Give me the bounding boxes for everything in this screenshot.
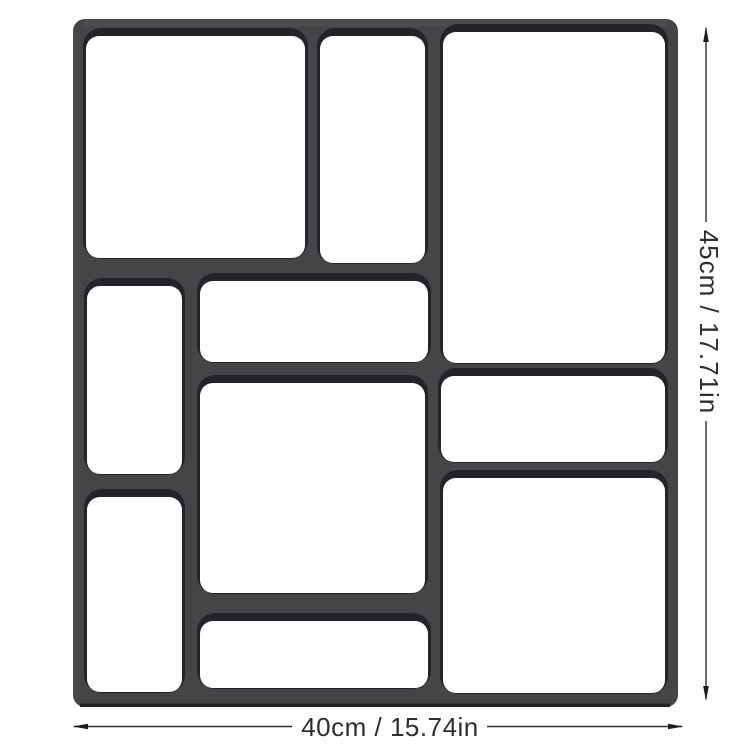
svg-text:40cm / 15.74in: 40cm / 15.74in [301,712,479,742]
svg-text:45cm / 17.71in: 45cm / 17.71in [694,230,724,415]
